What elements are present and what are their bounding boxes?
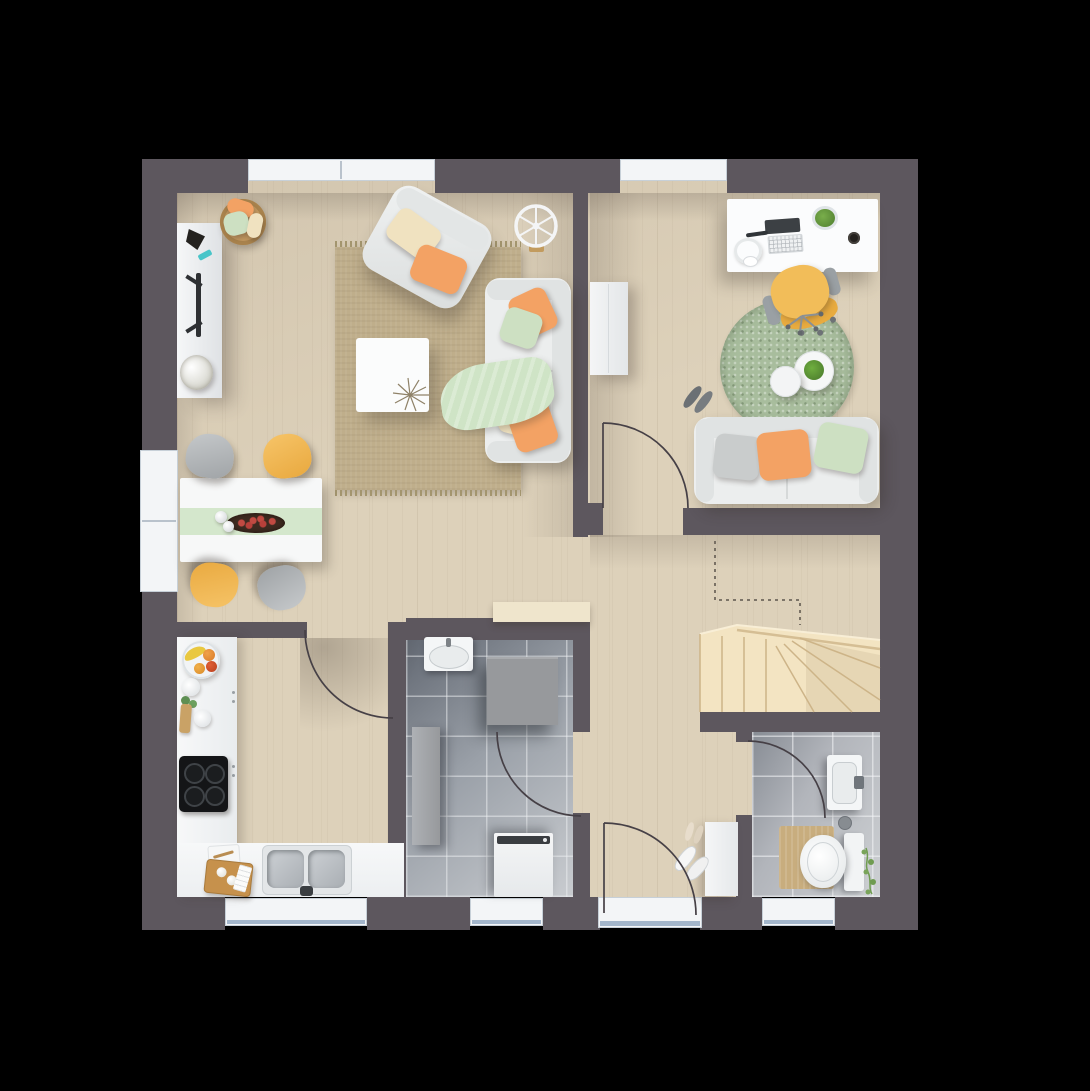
faucet — [446, 638, 451, 647]
window-kitchen — [225, 898, 367, 926]
side-table-small — [770, 366, 801, 397]
wc-sink — [827, 755, 862, 810]
sink-basin-left — [267, 850, 304, 888]
egg — [216, 867, 227, 878]
remote-control — [197, 249, 212, 261]
pepper-shaker — [223, 521, 234, 532]
wall-living-office-divider — [573, 193, 588, 537]
decor-coral — [180, 355, 213, 390]
wall-wc-west-lower — [736, 815, 752, 897]
apple-fruit — [206, 661, 217, 672]
utility-tall-cabinet — [412, 727, 440, 845]
chair-caster — [816, 329, 823, 336]
washer-control-panel — [497, 836, 550, 844]
coffee-table — [356, 338, 429, 412]
hall-sneakers — [679, 844, 711, 886]
toilet-tank — [844, 833, 864, 891]
window-top-right — [620, 159, 727, 181]
wall-utility-east-lower — [573, 813, 590, 897]
window-glass — [472, 920, 541, 924]
wall-bottom-4 — [700, 897, 762, 930]
decor-vase — [186, 229, 205, 250]
window-divider — [340, 161, 342, 179]
wall-utility-east-upper — [573, 640, 590, 732]
toilet-seat-line — [807, 842, 839, 882]
desk-plant — [815, 209, 835, 227]
chair-caster — [798, 329, 805, 336]
wall-right — [880, 159, 918, 930]
pen — [746, 230, 768, 237]
laptop-screen — [765, 218, 801, 234]
basin — [429, 645, 469, 669]
kitchen-towel — [233, 864, 253, 893]
wall-office-south — [683, 508, 880, 535]
chair-caster — [829, 316, 836, 323]
tv-sideboard — [177, 223, 222, 398]
wardrobe-door-seam — [608, 284, 609, 373]
hall-bench — [493, 602, 590, 622]
floor-plan-canvas — [0, 0, 1090, 1091]
sink-basin-right — [308, 850, 345, 888]
wall-left-upper — [142, 159, 177, 450]
toilet — [798, 832, 864, 892]
cabinet-handle — [232, 765, 235, 768]
white-bowl — [182, 678, 200, 696]
window-glass — [764, 920, 833, 924]
burner — [205, 786, 225, 806]
wall-top-middle — [435, 159, 620, 193]
wall-bottom-1 — [142, 897, 225, 930]
window-utility — [470, 898, 543, 926]
wall-bottom-5 — [835, 897, 918, 930]
entrance-door-sill — [598, 897, 702, 928]
dining-table — [180, 478, 322, 562]
induction-cooktop — [179, 756, 228, 812]
window-top-left — [248, 159, 435, 181]
rug-fringe-bottom — [335, 490, 521, 496]
wall-under-stairs — [700, 712, 880, 732]
white-jar — [194, 710, 211, 727]
fruit-plate — [182, 641, 220, 679]
office-sofa — [694, 417, 879, 504]
kitchen-jar-group — [179, 678, 219, 734]
toilet-bowl — [800, 835, 846, 888]
wall-wc-west-upper — [736, 732, 752, 742]
wall-bottom-3 — [543, 897, 600, 930]
orange-fruit — [194, 663, 205, 674]
faucet — [854, 776, 864, 789]
office-shoes — [688, 384, 718, 414]
table-plant — [804, 360, 824, 380]
burner — [184, 763, 205, 784]
sofa-pillow-orange — [756, 428, 813, 481]
wall-bottom-2 — [367, 897, 470, 930]
toilet-brush — [838, 816, 852, 830]
orange-fruit — [203, 649, 215, 661]
washing-machine — [494, 833, 553, 897]
door-threshold — [600, 921, 700, 926]
wooden-board-upright — [179, 704, 192, 734]
pillow-basket — [220, 199, 266, 245]
sofa-armrest-left — [696, 419, 714, 502]
wall-kitchen-north — [177, 622, 307, 638]
office-wardrobe — [590, 282, 628, 375]
window-left — [140, 450, 178, 592]
coffee-cup — [848, 232, 860, 244]
wooden-spoon — [213, 850, 234, 859]
window-glass — [227, 920, 365, 924]
sink-faucet — [300, 886, 313, 896]
cabinet-handle — [232, 691, 235, 694]
cutting-board — [203, 859, 253, 898]
burner — [205, 764, 225, 784]
laptop-keyboard — [767, 234, 803, 254]
sofa-pillow-green — [812, 421, 870, 476]
burner — [184, 786, 205, 807]
kitchen-sink — [262, 845, 352, 895]
washer-knob — [543, 838, 547, 842]
window-wc — [762, 898, 835, 926]
utility-sink — [424, 637, 473, 671]
wall-office-door-pier — [588, 503, 603, 535]
wall-left-lower — [142, 592, 177, 930]
sofa-pillow-gray — [712, 433, 762, 482]
utility-unit — [487, 657, 558, 725]
fruit-bowl — [227, 513, 285, 533]
window-divider — [142, 520, 176, 522]
computer-mouse — [743, 256, 758, 267]
